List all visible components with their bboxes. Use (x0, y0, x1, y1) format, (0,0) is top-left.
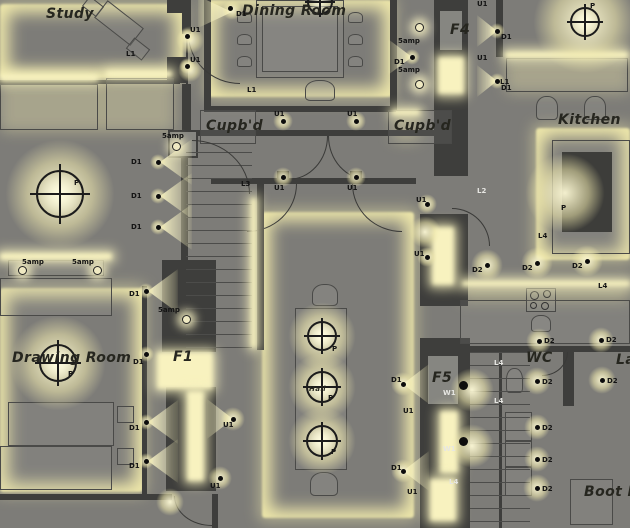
fitting-label-l4: L4 (449, 478, 458, 486)
fitting-label-d1: D1 (391, 376, 402, 384)
downlight (144, 289, 149, 294)
wall (182, 84, 191, 130)
stair-tread (470, 495, 530, 496)
fitting-label-d2: D2 (606, 336, 617, 344)
fitting-label-5amp: 5amp (398, 66, 420, 74)
room-label-cupb-d: Cupb'd (206, 118, 263, 134)
wall (167, 0, 188, 13)
downlight (459, 381, 468, 390)
hob-ring (530, 302, 537, 309)
stair-tread (186, 308, 252, 309)
fitting-label-d1: D1 (236, 10, 247, 18)
chair (310, 472, 338, 496)
fitting-label-p: P (331, 448, 336, 456)
fitting-label-u1: U1 (403, 407, 414, 415)
downlight (144, 459, 149, 464)
stair-tread (186, 217, 252, 218)
downlight (599, 338, 604, 343)
fitting-label-d1: D1 (391, 464, 402, 472)
room-label-drawing-room: Drawing Room (12, 350, 131, 366)
fitting-label-l4: L4 (494, 359, 503, 367)
downlight (354, 119, 359, 124)
fitting-label-d1: D1 (129, 462, 140, 470)
downlight (218, 476, 223, 481)
downlight (144, 352, 149, 357)
fitting-label-d2: D2 (544, 337, 555, 345)
fitting-label-l1: L1 (500, 78, 509, 86)
fitting-label-d1: D1 (394, 58, 405, 66)
fitting-label-u1: U1 (274, 110, 285, 118)
fitting-label-5amp: 5amp (158, 306, 180, 314)
downlight (495, 79, 500, 84)
fitting-label-l2: L2 (477, 187, 486, 195)
downlight (144, 420, 149, 425)
light-glow (156, 488, 184, 516)
hob-ring (530, 291, 539, 300)
fitting-label-l4: L4 (538, 232, 547, 240)
fitting-label-d2: D2 (542, 424, 553, 432)
fitting-label-d2: D2 (542, 456, 553, 464)
fitting-label-d2: D2 (607, 377, 618, 385)
stair-tread (186, 282, 252, 283)
downlight (585, 259, 590, 264)
led-strip-glow (392, 110, 420, 115)
room-label-kitchen: Kitchen (558, 112, 621, 128)
fitting-label-d1: D1 (131, 158, 142, 166)
door-swing (452, 208, 490, 246)
fitting-label-d2: D2 (542, 485, 553, 493)
fitting-label-u1: U1 (274, 184, 285, 192)
ceiling-light-symbol (36, 170, 84, 218)
fitting-label-u1: U1 (223, 421, 234, 429)
fitting-label-u1: U1 (347, 110, 358, 118)
fitting-label-p: P (332, 345, 337, 353)
fitting-label-d2: D2 (472, 266, 483, 274)
led-strip-glow (438, 57, 464, 94)
furniture (0, 446, 112, 490)
downlight (354, 175, 359, 180)
fitting-label-u1: U1 (477, 54, 488, 62)
stair-tread (470, 521, 530, 522)
fitting-label-d2: D2 (572, 262, 583, 270)
led-strip-glow (251, 198, 256, 348)
stair-tread (186, 230, 252, 231)
light-glow (525, 153, 605, 233)
room-label-cupb-d: Cupb'd (394, 118, 451, 134)
chair (305, 80, 335, 101)
downlight (185, 34, 190, 39)
5amp-socket (172, 142, 181, 151)
stair-tread (470, 482, 530, 483)
led-strip-glow (0, 75, 98, 81)
downlight (459, 437, 468, 446)
wall (212, 494, 218, 528)
stair-tread (470, 508, 530, 509)
room-label-f1: F1 (173, 349, 193, 365)
fitting-label-l3: L3 (241, 180, 250, 188)
5amp-socket (415, 23, 424, 32)
furniture (0, 278, 112, 316)
fitting-label-d1: D1 (501, 33, 512, 41)
fitting-label-5amp: 5amp (398, 37, 420, 45)
fitting-label-d2: D2 (542, 378, 553, 386)
fitting-label-p: P (590, 2, 595, 10)
fitting-label-w1: W1 (443, 389, 456, 397)
5amp-socket (18, 266, 27, 275)
light-glow (450, 424, 494, 468)
fitting-label-w1: W1 (443, 445, 456, 453)
downlight (156, 225, 161, 230)
downlight (185, 64, 190, 69)
downlight (281, 119, 286, 124)
door-swing (288, 136, 328, 180)
stair-tread (186, 204, 252, 205)
fitting-label-u1: U1 (190, 56, 201, 64)
stair-tread (186, 347, 252, 348)
stair-tread (186, 334, 252, 335)
room-label-hall: Hall (309, 385, 326, 393)
fitting-label-u1: U1 (347, 184, 358, 192)
stair-tread (186, 256, 252, 257)
downlight (495, 29, 500, 34)
stair-tread (470, 469, 530, 470)
light-glow (450, 368, 494, 412)
fitting-label-d1: D1 (129, 424, 140, 432)
fitting-label-u1: U1 (407, 488, 418, 496)
wall (0, 494, 172, 500)
downlight (156, 194, 161, 199)
5amp-socket (415, 80, 424, 89)
fitting-label-u1: U1 (190, 26, 201, 34)
led-strip-glow (106, 71, 172, 77)
downlight (535, 379, 540, 384)
furniture (117, 406, 134, 423)
led-strip-glow (187, 391, 204, 481)
fitting-label-u1: U1 (414, 250, 425, 258)
hob-ring (541, 302, 549, 310)
chair (536, 96, 558, 120)
chair (348, 34, 363, 45)
floor-plan: StudyDining RoomCupb'dCupb'dF4KitchenWCL… (0, 0, 630, 528)
stair-tread (470, 352, 530, 353)
led-strip-glow (0, 253, 112, 260)
5amp-socket (93, 266, 102, 275)
furniture (106, 78, 174, 130)
fitting-label-d1: D1 (133, 358, 144, 366)
fitting-label-5amp: 5amp (22, 258, 44, 266)
room-label-f5: F5 (432, 370, 452, 386)
downlight (600, 378, 605, 383)
downlight (535, 486, 540, 491)
fitting-label-l4: L4 (598, 282, 607, 290)
stair-tread (186, 295, 252, 296)
stair-tread (186, 269, 252, 270)
fitting-label-p: P (74, 179, 79, 187)
fitting-label-l4: L4 (494, 397, 503, 405)
room-label-study: Study (46, 6, 94, 22)
chair (348, 56, 363, 67)
room-label-la: La (616, 352, 630, 368)
room-label-wc: WC (526, 350, 553, 366)
room-label-boot-ro: Boot Ro (584, 484, 630, 500)
room-label-f4: F4 (450, 22, 470, 38)
fitting-label-p: P (68, 370, 73, 378)
5amp-socket (182, 315, 191, 324)
fitting-label-d1: D1 (131, 223, 142, 231)
light-glow (409, 216, 441, 248)
downlight (425, 255, 430, 260)
hob-ring (543, 290, 551, 298)
fitting-label-d1: D1 (131, 192, 142, 200)
downlight (156, 160, 161, 165)
ceiling-light-symbol (570, 7, 600, 37)
stair-tread (186, 321, 252, 322)
furniture (0, 84, 98, 130)
downlight (535, 457, 540, 462)
fitting-label-d1: D1 (129, 290, 140, 298)
fitting-label-5amp: 5amp (72, 258, 94, 266)
fitting-label-d2: D2 (522, 264, 533, 272)
fitting-label-u1: U1 (477, 0, 488, 8)
downlight (535, 425, 540, 430)
fitting-label-u1: U1 (210, 482, 221, 490)
stair-tread (186, 243, 252, 244)
fitting-label-p: P (328, 394, 333, 402)
stair-tread (470, 417, 530, 418)
downlight (228, 6, 233, 11)
downlight (281, 175, 286, 180)
downlight (410, 55, 415, 60)
fitting-label-p: P (561, 204, 566, 212)
fitting-label-l1: L1 (126, 50, 135, 58)
downlight (535, 261, 540, 266)
fitting-label-u1: U1 (416, 196, 427, 204)
chair (348, 12, 363, 23)
fitting-label-l1: L1 (247, 86, 256, 94)
downlight (485, 263, 490, 268)
fitting-label-5amp: 5amp (162, 132, 184, 140)
room-label-dining-room: Dining Room (242, 3, 346, 19)
downlight (537, 339, 542, 344)
